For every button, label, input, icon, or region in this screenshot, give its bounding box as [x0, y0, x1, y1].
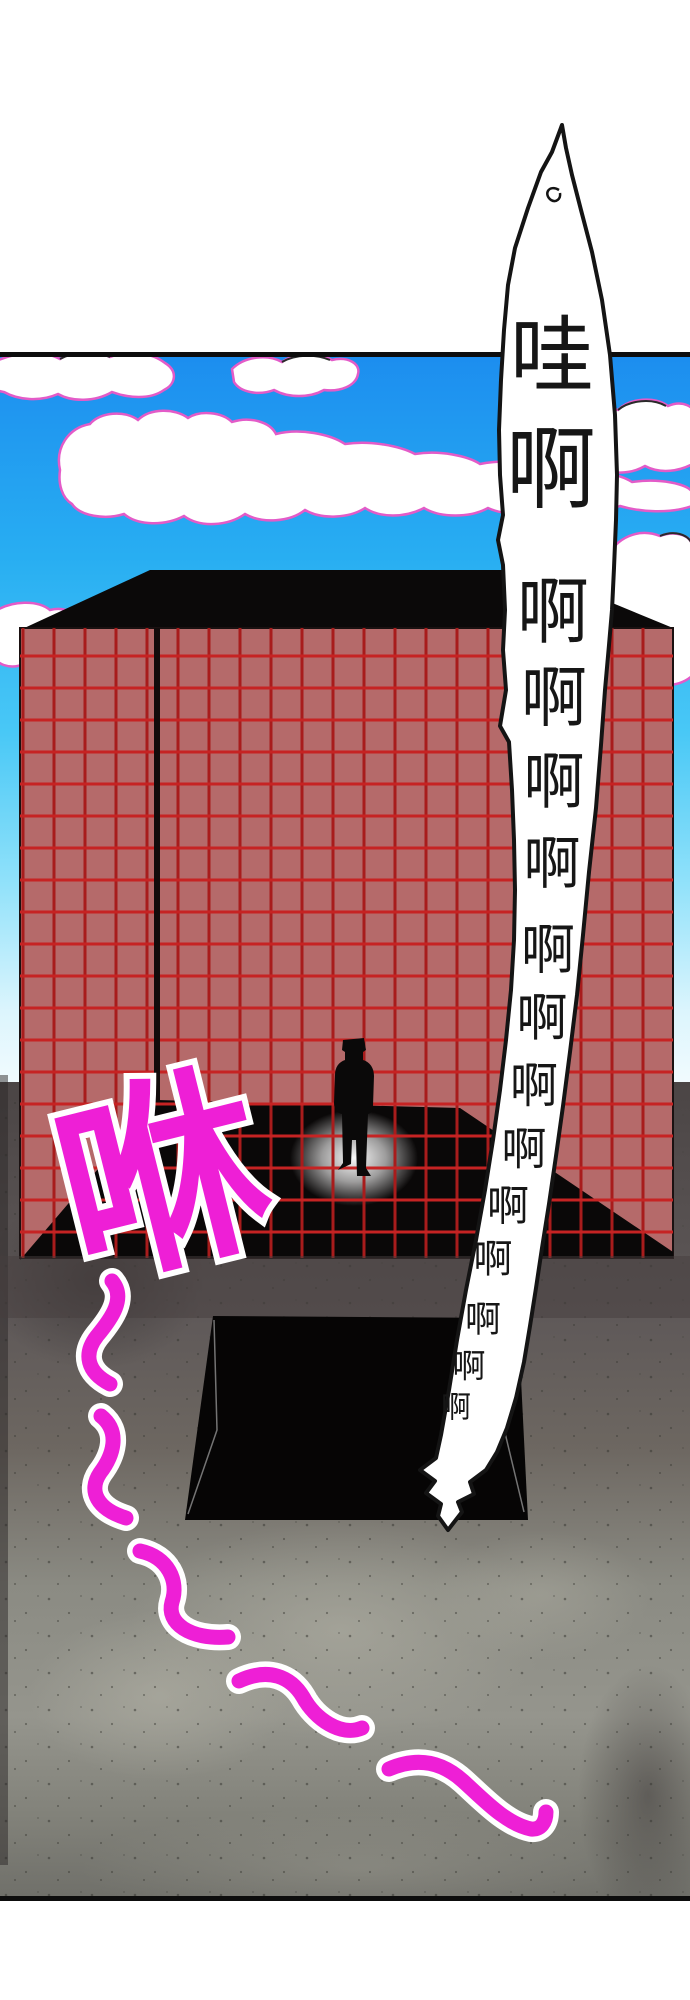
- scream-char: 啊: [517, 570, 589, 654]
- scream-char: 啊: [506, 418, 596, 523]
- scream-char: 啊: [441, 1391, 471, 1426]
- bottom-margin: [0, 1901, 690, 2000]
- scream-char: 啊: [510, 1058, 558, 1114]
- comic-page: 哇啊啊啊啊啊啊啊啊啊啊啊啊啊啊 咻: [0, 0, 690, 2000]
- scream-char: 啊: [487, 1182, 529, 1231]
- scream-char: 啊: [521, 660, 587, 737]
- scream-char: 啊: [473, 1238, 512, 1283]
- cloud: [232, 354, 358, 396]
- cloud: [0, 351, 174, 400]
- scream-char: 啊: [465, 1300, 501, 1341]
- scream-char: 啊: [516, 990, 567, 1049]
- scream-char: 啊: [453, 1347, 486, 1386]
- comic-panel-art: 哇啊啊啊啊啊啊啊啊啊啊啊啊啊啊 咻: [0, 0, 690, 2000]
- scream-char: 啊: [501, 1123, 546, 1176]
- scream-char: 啊: [523, 747, 584, 818]
- building-corner-edge: [154, 628, 160, 1102]
- scream-char: 啊: [524, 831, 581, 897]
- scream-char: 啊: [521, 919, 575, 982]
- panel-border-bottom: [0, 1896, 690, 1901]
- scream-char: 哇: [510, 307, 594, 405]
